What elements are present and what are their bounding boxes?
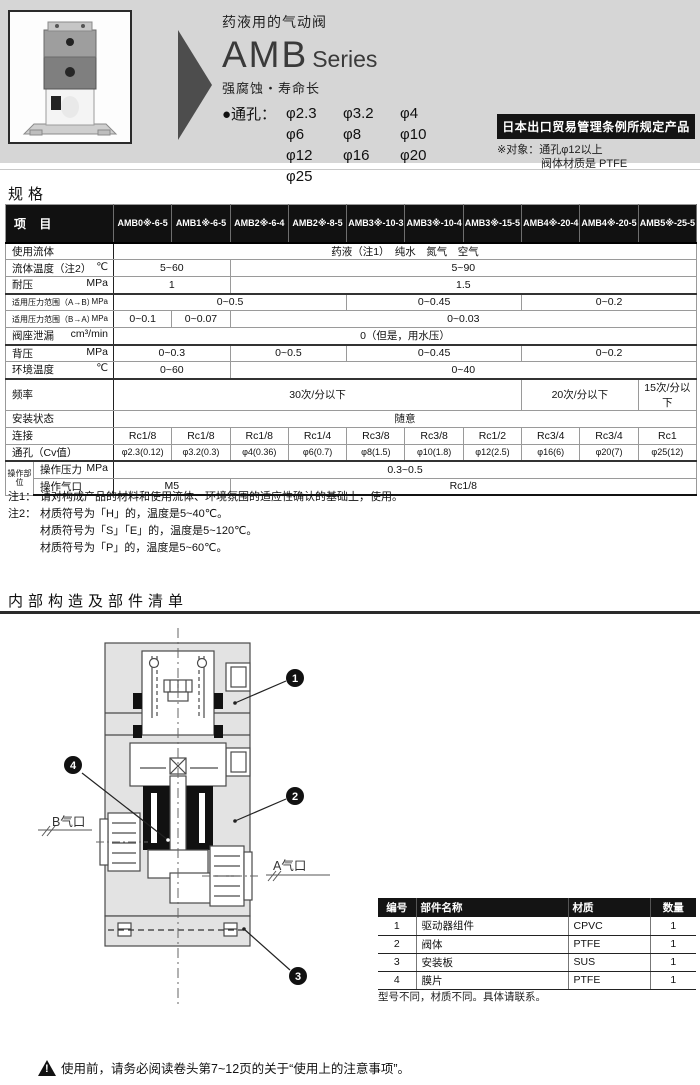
note-row: 材质符号为「S」「E」的，温度是5~120℃。 xyxy=(8,523,403,540)
parts-col-header: 部件名称 xyxy=(416,898,568,917)
parts-row: 3安装板SUS1 xyxy=(378,953,696,971)
spec-row: 耐压MPa11.5 xyxy=(6,277,697,294)
spec-row: 使用流体药液（注1） 纯水 氮气 空气 xyxy=(6,243,697,260)
spec-cell: 0~0.03 xyxy=(230,311,696,328)
spec-row-label: 安装状态 xyxy=(6,410,114,427)
note-label xyxy=(8,540,40,557)
spec-row-label: 环境温度℃ xyxy=(6,362,114,379)
spec-row-name: 环境温度 xyxy=(12,362,54,377)
bore-grid: φ2.3φ3.2φ4φ6φ8φ10φ12φ16φ20φ25 xyxy=(286,103,457,187)
spec-row-name: 适用压力范围（A→B） xyxy=(12,297,92,308)
spec-model-header: AMB5※-25-5 xyxy=(638,205,696,243)
product-photo xyxy=(8,10,132,144)
spec-cell: 0~0.07 xyxy=(172,311,230,328)
spec-row-label-wrap: 操作压力MPa xyxy=(35,462,112,477)
spec-cell: φ10(1.8) xyxy=(405,444,463,461)
parts-table-body: 1驱动器组件CPVC12阀体PTFE13安装板SUS14膜片PTFE1 xyxy=(378,917,696,989)
badge-note: ※对象：通孔φ12以上 阀体材质是 PTFE xyxy=(497,143,627,171)
spec-cell: 0.3~0.5 xyxy=(114,461,697,478)
spec-notes: 注1：请对构成产品的材料和使用流体、环境氛围的适应性确认的基础上，使用。注2：材… xyxy=(8,489,403,557)
spec-row-name: 通孔（Cv值） xyxy=(12,445,77,460)
parts-row: 1驱动器组件CPVC1 xyxy=(378,917,696,935)
spec-row-label: 适用压力范围（B→A）MPa xyxy=(6,311,114,328)
header-band: 药液用的气动阀 AMBSeries 强腐蚀・寿命长 ●通孔： φ2.3φ3.2φ… xyxy=(0,0,700,163)
parts-col-header: 数量 xyxy=(650,898,696,917)
spec-row-label-wrap: 阀座泄漏cm³/min xyxy=(7,328,112,343)
spec-cell: 0~0.45 xyxy=(347,294,522,311)
spec-cell: 0（但是，用水压） xyxy=(114,328,697,345)
spec-row-label-wrap: 安装状态 xyxy=(7,411,112,426)
spec-cell: φ6(0.7) xyxy=(288,444,346,461)
parts-cell: 3 xyxy=(378,953,416,971)
spec-cell: φ25(12) xyxy=(638,444,696,461)
spec-row-name: 使用流体 xyxy=(12,244,54,259)
spec-cell: φ12(2.5) xyxy=(463,444,521,461)
bore-size: φ2.3 xyxy=(286,103,343,124)
bore-size: φ8 xyxy=(343,124,400,145)
parts-header-row: 编号部件名称材质数量 xyxy=(378,898,696,917)
spec-table-head: 项 目AMB0※-6-5AMB1※-6-5AMB2※-6-4AMB2※-8-5A… xyxy=(6,205,697,243)
bore-size: φ12 xyxy=(286,145,343,166)
parts-cell: 1 xyxy=(650,953,696,971)
parts-cell: 驱动器组件 xyxy=(416,917,568,935)
parts-cell: 4 xyxy=(378,971,416,989)
spec-section-title: 规格 xyxy=(8,183,48,204)
spec-cell: 随意 xyxy=(114,410,697,427)
bore-size: φ6 xyxy=(286,124,343,145)
parts-cell: SUS xyxy=(568,953,650,971)
bore-size: φ4 xyxy=(400,103,457,124)
spec-row: 适用压力范围（B→A）MPa0~0.10~0.070~0.03 xyxy=(6,311,697,328)
spec-row: 频率30次/分以下20次/分以下15次/分以下 xyxy=(6,379,697,411)
spec-row-label-wrap: 流体温度（注2）℃ xyxy=(7,261,112,276)
spec-cell: 1 xyxy=(114,277,231,294)
spec-model-header: AMB2※-6-4 xyxy=(230,205,288,243)
spec-row: 流体温度（注2）℃5~605~90 xyxy=(6,260,697,277)
bore-row: φ6φ8φ10 xyxy=(286,124,457,145)
spec-model-header: AMB4※-20-4 xyxy=(522,205,580,243)
spec-row-name: 流体温度（注2） xyxy=(12,261,91,276)
spec-model-header: AMB4※-20-5 xyxy=(580,205,638,243)
spec-row-name: 操作压力 xyxy=(40,462,82,477)
spec-table-body: 使用流体药液（注1） 纯水 氮气 空气流体温度（注2）℃5~605~90耐压MP… xyxy=(6,243,697,496)
bore-size: φ3.2 xyxy=(343,103,400,124)
spec-row: 通孔（Cv值）φ2.3(0.12)φ3.2(0.3)φ4(0.36)φ6(0.7… xyxy=(6,444,697,461)
spec-row-name: 安装状态 xyxy=(12,411,54,426)
spec-cell: 0~0.1 xyxy=(114,311,172,328)
divider xyxy=(0,169,700,170)
spec-header-row: 项 目AMB0※-6-5AMB1※-6-5AMB2※-6-4AMB2※-8-5A… xyxy=(6,205,697,243)
spec-row: 阀座泄漏cm³/min0（但是，用水压） xyxy=(6,328,697,345)
spec-cell: Rc1/8 xyxy=(230,427,288,444)
spec-row-unit: MPa xyxy=(86,462,108,477)
spec-cell: 0~0.5 xyxy=(230,345,347,362)
spec-row-unit: ℃ xyxy=(96,362,108,377)
badge-note-line1: ※对象：通孔φ12以上 xyxy=(497,143,627,157)
spec-row-label-wrap: 使用流体 xyxy=(7,244,112,259)
bore-row: φ12φ16φ20 xyxy=(286,145,457,166)
spec-row: 安装状态随意 xyxy=(6,410,697,427)
spec-cell: Rc3/4 xyxy=(580,427,638,444)
spec-table: 项 目AMB0※-6-5AMB1※-6-5AMB2※-6-4AMB2※-8-5A… xyxy=(5,204,697,496)
series-title: AMBSeries xyxy=(222,34,457,76)
spec-cell: Rc3/4 xyxy=(522,427,580,444)
spec-row-label: 通孔（Cv值） xyxy=(6,444,114,461)
spec-row-label: 适用压力范围（A→B）MPa xyxy=(6,294,114,311)
spec-row-label: 耐压MPa xyxy=(6,277,114,294)
spec-row-name: 耐压 xyxy=(12,277,33,292)
valve-photo-graphic xyxy=(10,12,130,142)
parts-cell: 1 xyxy=(378,917,416,935)
section-rule xyxy=(0,611,700,614)
tagline: 强腐蚀・寿命长 xyxy=(222,78,457,97)
spec-row: 环境温度℃0~600~40 xyxy=(6,362,697,379)
spec-row: 背压MPa0~0.30~0.50~0.450~0.2 xyxy=(6,345,697,362)
spec-row-label: 连接 xyxy=(6,427,114,444)
spec-cell: Rc1/8 xyxy=(172,427,230,444)
spec-cell: 1.5 xyxy=(230,277,696,294)
spec-row-label-wrap: 背压MPa xyxy=(7,346,112,361)
spec-row: 操作部位操作压力MPa0.3~0.5 xyxy=(6,461,697,478)
arrow-icon xyxy=(178,30,212,140)
spec-cell: Rc3/8 xyxy=(405,427,463,444)
internal-structure-diagram: 1 2 3 4 B气口 A气口 xyxy=(30,618,380,1023)
spec-cell: φ4(0.36) xyxy=(230,444,288,461)
spec-row-label-wrap: 适用压力范围（B→A）MPa xyxy=(7,314,112,325)
callout-2-label: 2 xyxy=(292,791,298,803)
spec-cell: 0~0.5 xyxy=(114,294,347,311)
spec-cell: Rc3/8 xyxy=(347,427,405,444)
spec-row-label: 操作压力MPa xyxy=(34,461,114,478)
callout-3-label: 3 xyxy=(295,971,301,983)
spec-cell: Rc1/8 xyxy=(114,427,172,444)
note-row: 注1：请对构成产品的材料和使用流体、环境氛围的适应性确认的基础上，使用。 xyxy=(8,489,403,506)
spec-table-wrap: 项 目AMB0※-6-5AMB1※-6-5AMB2※-6-4AMB2※-8-5A… xyxy=(5,204,697,496)
parts-row: 4膜片PTFE1 xyxy=(378,971,696,989)
spec-model-header: AMB3※-10-3 xyxy=(347,205,405,243)
spec-model-header: AMB2※-8-5 xyxy=(288,205,346,243)
callout-1-label: 1 xyxy=(292,673,298,685)
spec-row-unit: ℃ xyxy=(96,261,108,276)
callout-4-label: 4 xyxy=(70,760,77,772)
spec-cell: 0~0.2 xyxy=(522,294,697,311)
structure-section-title: 内部构造及部件清单 xyxy=(8,590,188,611)
spec-cell: Rc1/4 xyxy=(288,427,346,444)
parts-cell: PTFE xyxy=(568,935,650,953)
note-label: 注2： xyxy=(8,506,40,523)
note-label: 注1： xyxy=(8,489,40,506)
parts-cell: 安装板 xyxy=(416,953,568,971)
spec-cell: 30次/分以下 xyxy=(114,379,522,411)
spec-cell: φ20(7) xyxy=(580,444,638,461)
spec-model-header: AMB3※-10-4 xyxy=(405,205,463,243)
spec-row-label: 流体温度（注2）℃ xyxy=(6,260,114,277)
note-text: 材质符号为「H」的，温度是5~40℃。 xyxy=(40,506,228,523)
spec-row-label-wrap: 适用压力范围（A→B）MPa xyxy=(7,297,112,308)
parts-table-head: 编号部件名称材质数量 xyxy=(378,898,696,917)
a-port-label: A气口 xyxy=(273,858,306,873)
spec-cell: Rc1/2 xyxy=(463,427,521,444)
spec-row-unit: cm³/min xyxy=(71,328,108,343)
spec-cell: 0~60 xyxy=(114,362,231,379)
title-block: 药液用的气动阀 AMBSeries 强腐蚀・寿命长 ●通孔： φ2.3φ3.2φ… xyxy=(222,12,457,187)
spec-row-unit: MPa xyxy=(86,346,108,361)
warning-icon xyxy=(38,1060,56,1076)
spec-cell: 5~90 xyxy=(230,260,696,277)
note-row: 注2：材质符号为「H」的，温度是5~40℃。 xyxy=(8,506,403,523)
footer-warning-text: 使用前，请务必阅读卷头第7~12页的关于“使用上的注意事项”。 xyxy=(61,1058,410,1077)
parts-col-header: 编号 xyxy=(378,898,416,917)
parts-cell: 膜片 xyxy=(416,971,568,989)
spec-row-unit: MPa xyxy=(92,297,108,308)
parts-cell: 2 xyxy=(378,935,416,953)
spec-row-label-wrap: 频率 xyxy=(7,387,112,402)
note-text: 材质符号为「P」的，温度是5~60℃。 xyxy=(40,540,227,557)
spec-cell: 15次/分以下 xyxy=(638,379,696,411)
parts-cell: 1 xyxy=(650,917,696,935)
spec-row-name: 阀座泄漏 xyxy=(12,328,54,343)
spec-model-header: AMB3※-15-5 xyxy=(463,205,521,243)
parts-col-header: 材质 xyxy=(568,898,650,917)
spec-row-label-wrap: 通孔（Cv值） xyxy=(7,445,112,460)
bore-row: φ2.3φ3.2φ4 xyxy=(286,103,457,124)
spec-cell: φ8(1.5) xyxy=(347,444,405,461)
spec-model-header: AMB1※-6-5 xyxy=(172,205,230,243)
spec-row-name: 背压 xyxy=(12,346,33,361)
spec-cell: Rc1 xyxy=(638,427,696,444)
parts-cell: CPVC xyxy=(568,917,650,935)
spec-cell: 0~40 xyxy=(230,362,696,379)
bore-size: φ16 xyxy=(343,145,400,166)
parts-cell: PTFE xyxy=(568,971,650,989)
spec-cell: 0~0.45 xyxy=(347,345,522,362)
spec-row-label-wrap: 连接 xyxy=(7,428,112,443)
note-row: 材质符号为「P」的，温度是5~60℃。 xyxy=(8,540,403,557)
parts-row: 2阀体PTFE1 xyxy=(378,935,696,953)
regulation-badge: 日本出口贸易管理条例所规定产品 xyxy=(497,114,695,139)
bore-size: φ20 xyxy=(400,145,457,166)
product-subtitle: 药液用的气动阀 xyxy=(222,12,457,32)
spec-model-header: AMB0※-6-5 xyxy=(114,205,172,243)
spec-row-label: 频率 xyxy=(6,379,114,411)
spec-row-label: 阀座泄漏cm³/min xyxy=(6,328,114,345)
note-text: 请对构成产品的材料和使用流体、环境氛围的适应性确认的基础上，使用。 xyxy=(40,489,403,506)
b-port-label: B气口 xyxy=(52,814,85,829)
series-name: AMB xyxy=(222,34,308,75)
note-text: 材质符号为「S」「E」的，温度是5~120℃。 xyxy=(40,523,257,540)
spec-row: 连接Rc1/8Rc1/8Rc1/8Rc1/4Rc3/8Rc3/8Rc1/2Rc3… xyxy=(6,427,697,444)
footer-warning: 使用前，请务必阅读卷头第7~12页的关于“使用上的注意事项”。 xyxy=(38,1058,410,1077)
spec-cell: 药液（注1） 纯水 氮气 空气 xyxy=(114,243,697,260)
spec-row-name: 适用压力范围（B→A） xyxy=(12,314,92,325)
spec-cell: φ2.3(0.12) xyxy=(114,444,172,461)
spec-row-unit: MPa xyxy=(86,277,108,292)
spec-item-header: 项 目 xyxy=(6,205,114,243)
spec-cell: 0~0.2 xyxy=(522,345,697,362)
parts-cell: 1 xyxy=(650,935,696,953)
spec-cell: 0~0.3 xyxy=(114,345,231,362)
spec-row: 适用压力范围（A→B）MPa0~0.50~0.450~0.2 xyxy=(6,294,697,311)
spec-cell: φ16(6) xyxy=(522,444,580,461)
spec-row-name: 频率 xyxy=(12,387,33,402)
spec-row-label-wrap: 环境温度℃ xyxy=(7,362,112,377)
parts-note: 型号不同，材质不同。具体请联系。 xyxy=(378,989,546,1004)
parts-cell: 阀体 xyxy=(416,935,568,953)
spec-cell: 5~60 xyxy=(114,260,231,277)
parts-table: 编号部件名称材质数量 1驱动器组件CPVC12阀体PTFE13安装板SUS14膜… xyxy=(378,898,696,990)
spec-cell: 20次/分以下 xyxy=(522,379,639,411)
bore-size: φ10 xyxy=(400,124,457,145)
spec-cell: φ3.2(0.3) xyxy=(172,444,230,461)
bore-list: ●通孔： φ2.3φ3.2φ4φ6φ8φ10φ12φ16φ20φ25 xyxy=(222,103,457,187)
bore-label: ●通孔： xyxy=(222,103,286,187)
spec-row-name: 连接 xyxy=(12,428,33,443)
series-suffix: Series xyxy=(312,46,377,72)
spec-row-label: 背压MPa xyxy=(6,345,114,362)
spec-row-label-wrap: 耐压MPa xyxy=(7,277,112,292)
parts-cell: 1 xyxy=(650,971,696,989)
spec-row-label: 使用流体 xyxy=(6,243,114,260)
note-label xyxy=(8,523,40,540)
catalog-page: 药液用的气动阀 AMBSeries 强腐蚀・寿命长 ●通孔： φ2.3φ3.2φ… xyxy=(0,0,700,1085)
spec-row-unit: MPa xyxy=(92,314,108,325)
